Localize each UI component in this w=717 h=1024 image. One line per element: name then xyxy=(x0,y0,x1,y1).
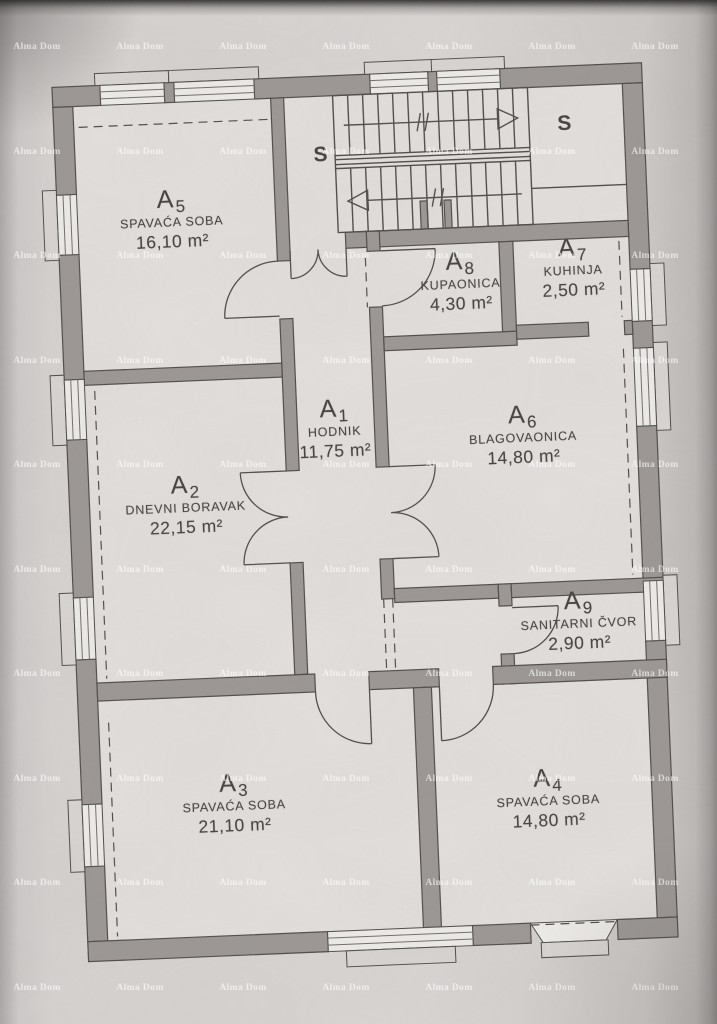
scanned-floor-plan-photo: A1 HODNIK 11,75 m² A2 DNEVNI BORAVAK 22,… xyxy=(0,0,717,1024)
stair-landing-label-right: S xyxy=(557,112,573,137)
room-label-a2: A2 DNEVNI BORAVAK 22,15 m² xyxy=(64,467,306,541)
stair-landing-label-left: S xyxy=(313,143,329,168)
room-label-a6: A6 BLAGOVAONICA 14,80 m² xyxy=(402,397,644,471)
room-label-a4: A4 SPAVAĆA SOBA 14,80 m² xyxy=(427,760,669,834)
room-label-a9: A9 SANITARNI ČVOR 2,90 m² xyxy=(457,583,699,657)
room-label-a8: A8 KUPAONICA 4,30 m² xyxy=(339,243,581,317)
room-label-a5: A5 SPAVAĆA SOBA 16,10 m² xyxy=(50,181,292,255)
room-label-a3: A3 SPAVAĆA SOBA 21,10 m² xyxy=(113,765,355,839)
room-labels-overlay: A1 HODNIK 11,75 m² A2 DNEVNI BORAVAK 22,… xyxy=(0,0,717,1024)
